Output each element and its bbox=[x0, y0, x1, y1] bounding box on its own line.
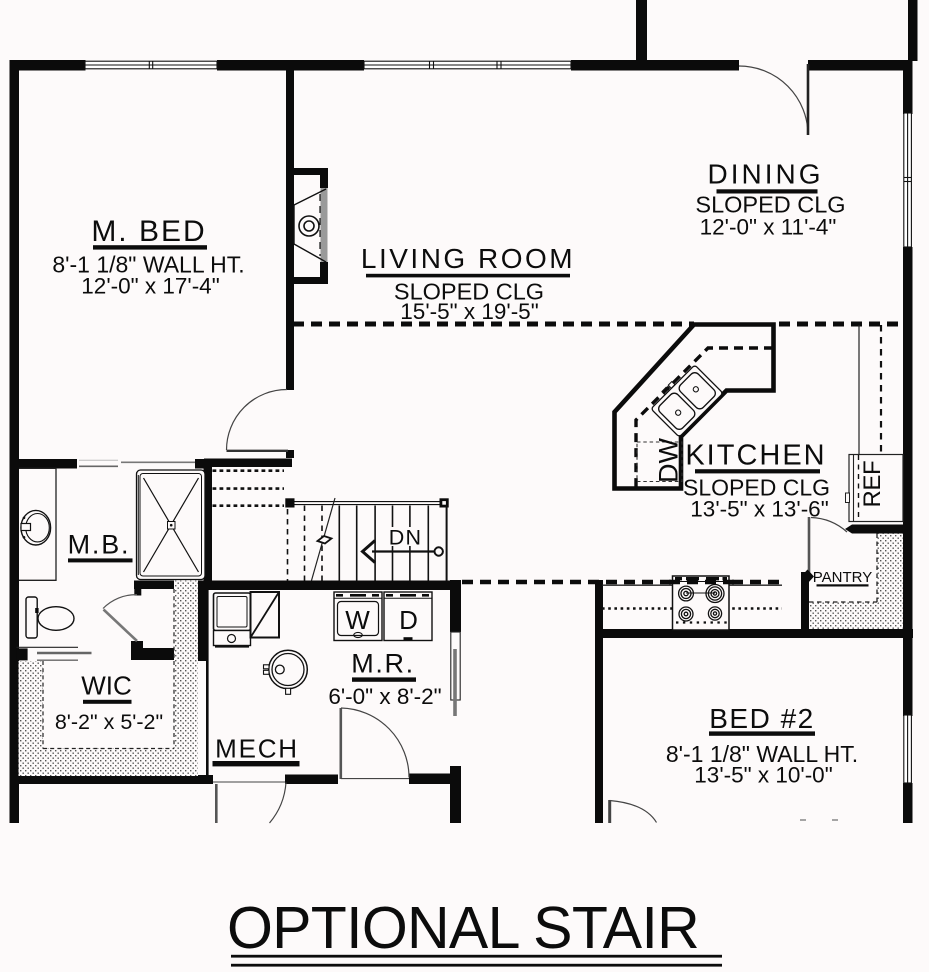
svg-text:LIVING ROOM: LIVING ROOM bbox=[361, 243, 575, 274]
svg-text:W: W bbox=[345, 605, 370, 635]
svg-text:12'-0" x 17'-4": 12'-0" x 17'-4" bbox=[81, 274, 219, 299]
svg-text:BED #2: BED #2 bbox=[709, 703, 815, 734]
svg-text:KITCHEN: KITCHEN bbox=[685, 440, 826, 472]
svg-text:M. BED: M. BED bbox=[91, 215, 206, 248]
svg-text:6'-0" x 8'-2": 6'-0" x 8'-2" bbox=[328, 684, 441, 709]
svg-text:MECH: MECH bbox=[215, 734, 299, 764]
svg-text:D: D bbox=[399, 605, 418, 635]
svg-text:M.R.: M.R. bbox=[351, 649, 414, 679]
svg-text:DINING: DINING bbox=[708, 159, 824, 190]
svg-text:DW: DW bbox=[654, 438, 684, 483]
svg-text:15'-5" x 19'-5": 15'-5" x 19'-5" bbox=[400, 299, 538, 324]
svg-text:PANTRY: PANTRY bbox=[813, 569, 872, 586]
svg-text:M.B.: M.B. bbox=[68, 530, 131, 560]
svg-text:DN: DN bbox=[389, 526, 422, 550]
svg-text:12'-0" x 11'-4": 12'-0" x 11'-4" bbox=[700, 215, 837, 240]
svg-text:WIC: WIC bbox=[81, 671, 132, 701]
svg-text:8'-2" x 5'-2": 8'-2" x 5'-2" bbox=[55, 710, 163, 734]
svg-text:13'-5" x 10'-0": 13'-5" x 10'-0" bbox=[694, 763, 832, 788]
svg-text:OPTIONAL STAIR: OPTIONAL STAIR bbox=[227, 895, 699, 961]
svg-text:REF: REF bbox=[859, 461, 886, 508]
